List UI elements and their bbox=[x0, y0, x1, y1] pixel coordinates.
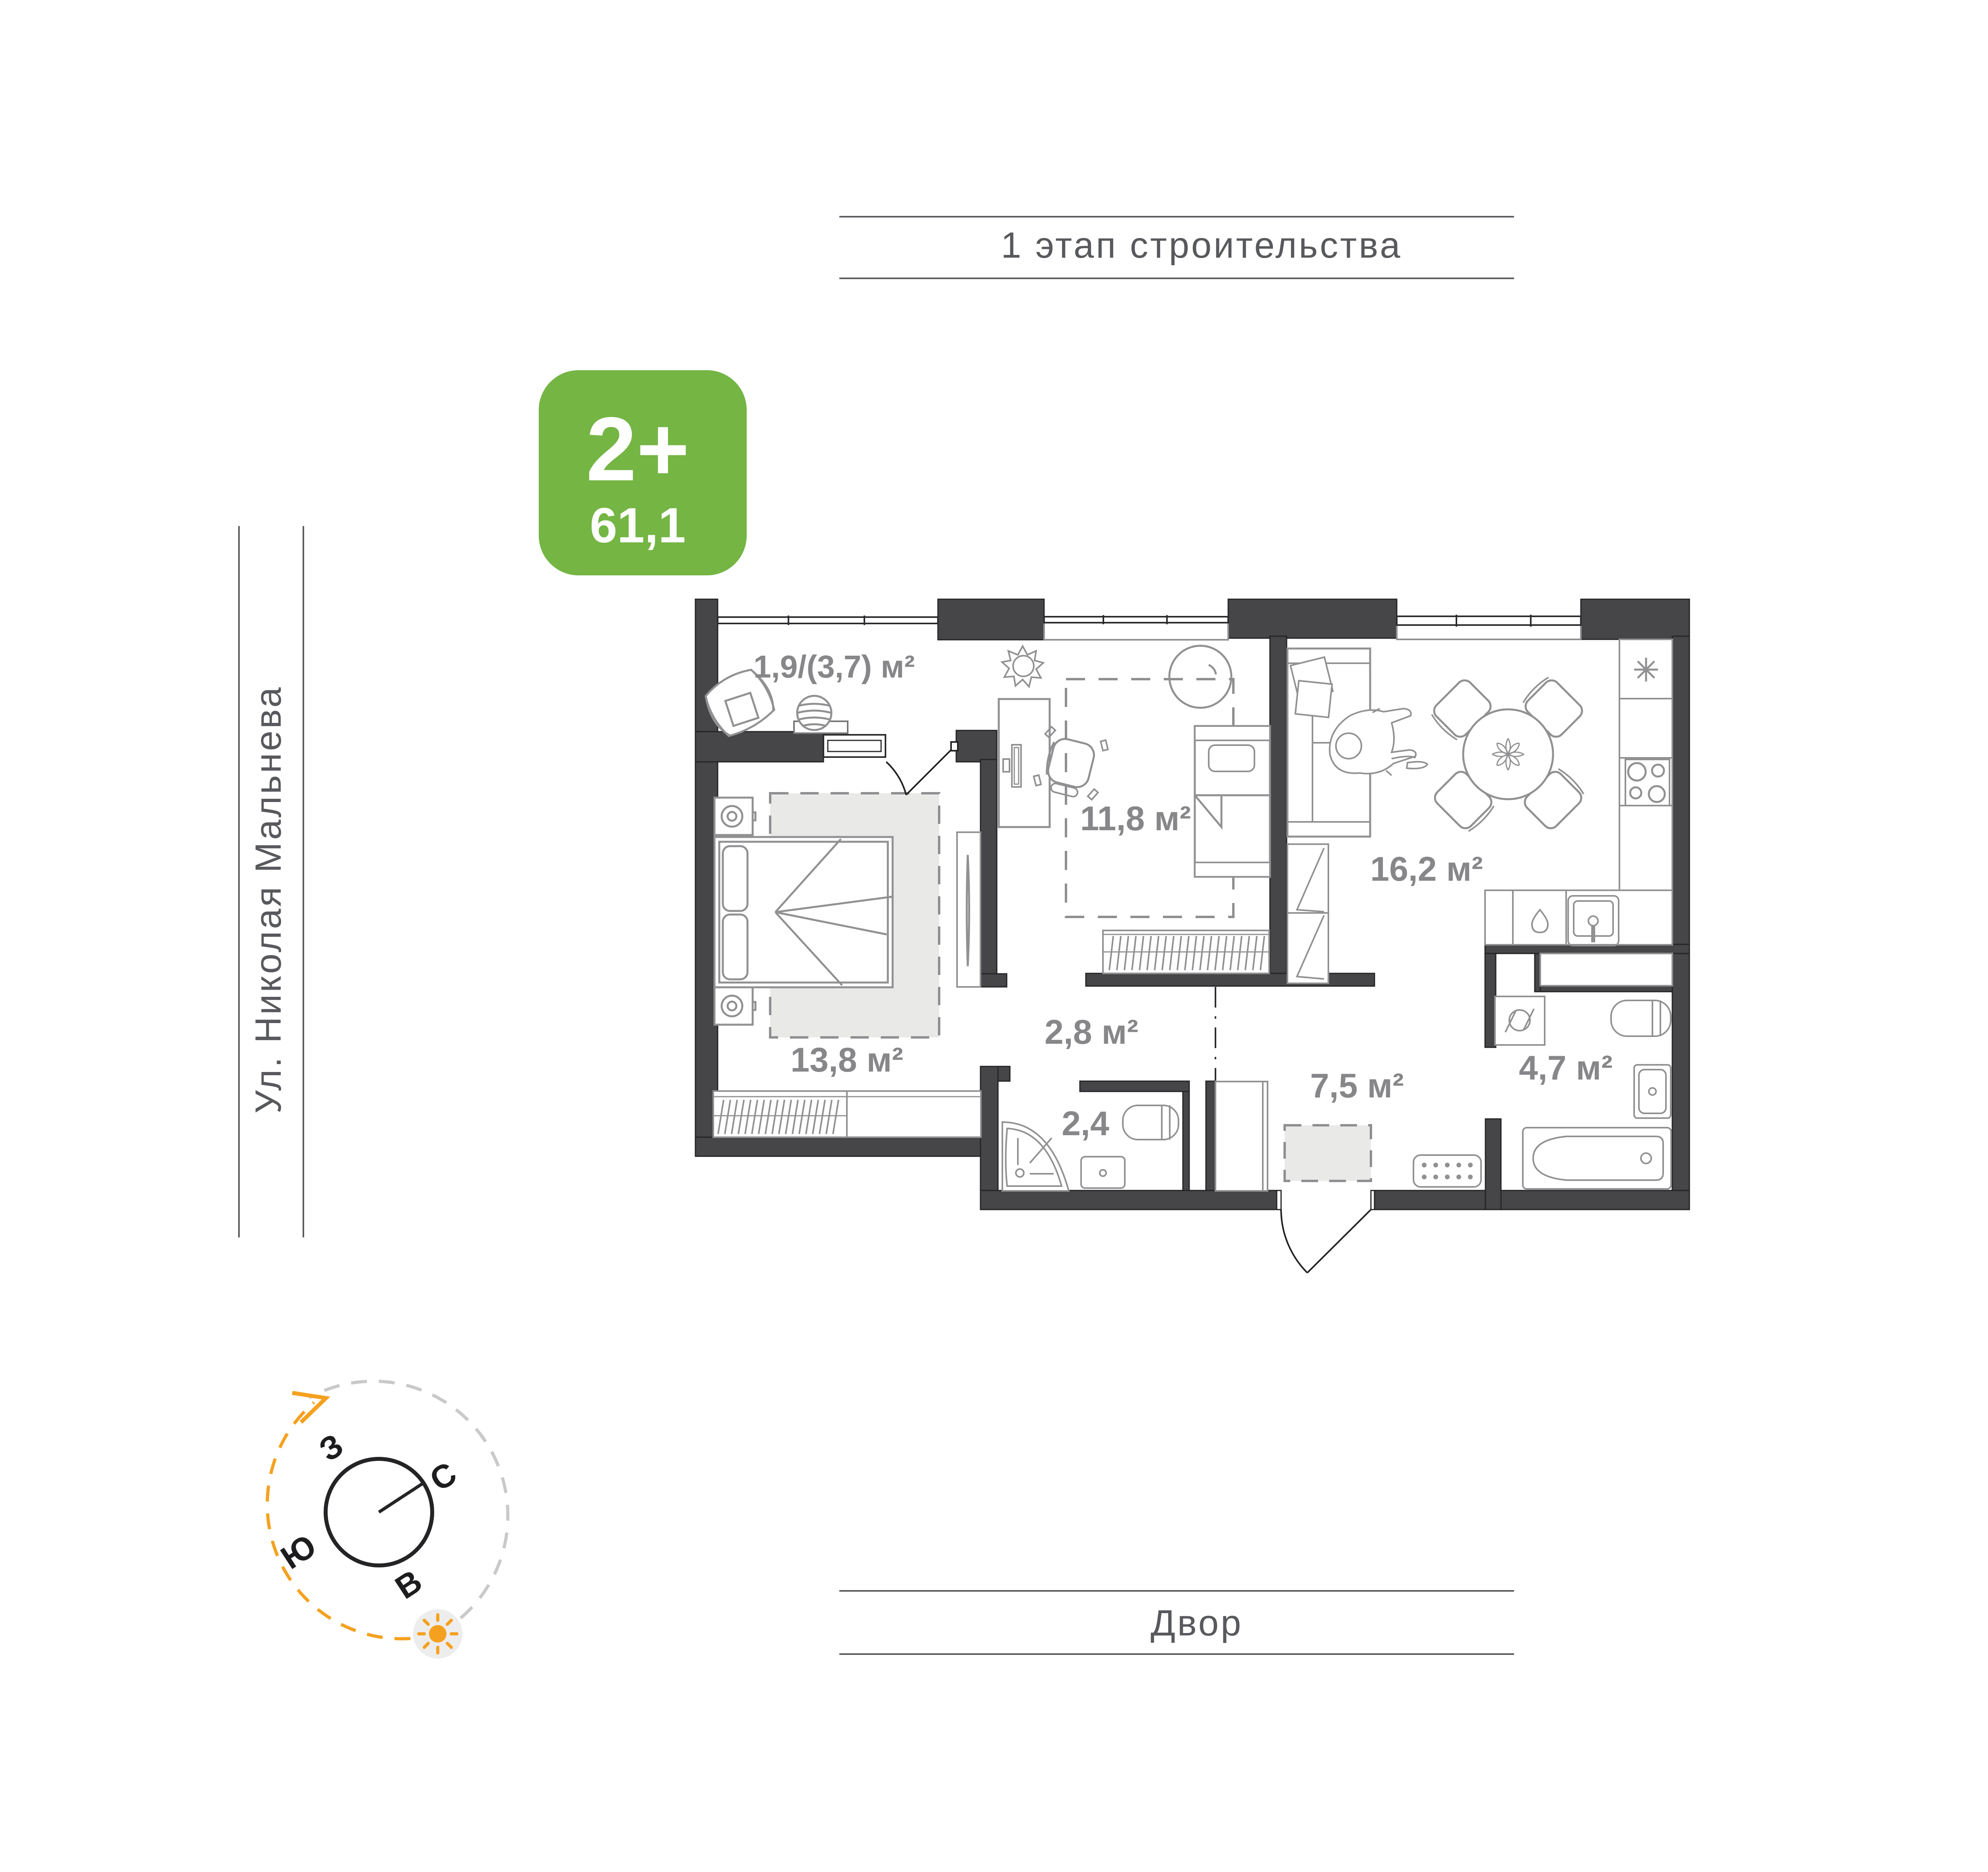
svg-text:13,8 м²: 13,8 м² bbox=[790, 1041, 903, 1079]
svg-text:2,4: 2,4 bbox=[1062, 1105, 1109, 1143]
svg-text:61,1: 61,1 bbox=[590, 498, 685, 553]
svg-text:2+: 2+ bbox=[586, 399, 689, 500]
svg-text:4,7 м²: 4,7 м² bbox=[1519, 1049, 1613, 1087]
svg-text:2,8 м²: 2,8 м² bbox=[1044, 1013, 1138, 1051]
svg-text:7,5 м²: 7,5 м² bbox=[1310, 1067, 1404, 1105]
svg-text:16,2 м²: 16,2 м² bbox=[1370, 850, 1483, 888]
svg-text:Ул. Николая Мальнева: Ул. Николая Мальнева bbox=[248, 685, 289, 1113]
svg-text:11,8 м²: 11,8 м² bbox=[1080, 800, 1191, 838]
svg-text:Двор: Двор bbox=[1151, 1603, 1243, 1643]
svg-text:1,9/(3,7) м²: 1,9/(3,7) м² bbox=[753, 649, 915, 684]
svg-text:1 этап строительства: 1 этап строительства bbox=[1001, 225, 1402, 266]
